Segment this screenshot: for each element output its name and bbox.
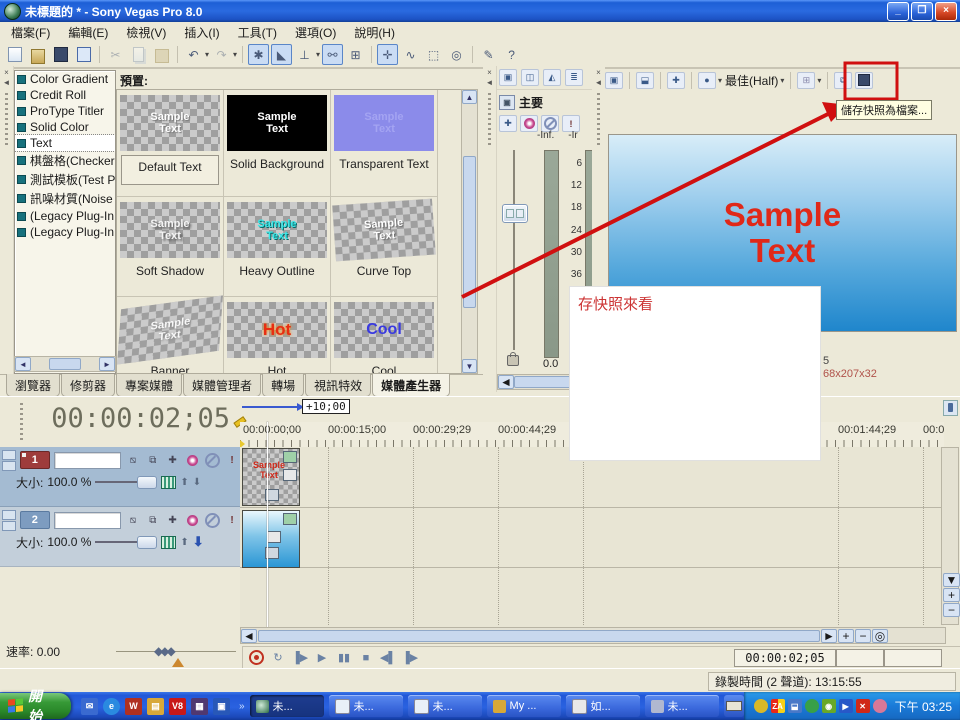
timeline-hscrollbar[interactable]: ◄ ► + − ◎ bbox=[240, 627, 946, 644]
plugin-icon bbox=[17, 91, 26, 100]
taskbar-clock: 下午 03:25 bbox=[895, 698, 952, 715]
scroll-left-icon[interactable]: ◄ bbox=[15, 357, 31, 371]
taskbar-window[interactable]: 如... bbox=[566, 695, 640, 717]
preset-grid: Sample Text Default Text Sample Text Sol… bbox=[116, 89, 462, 374]
timeline-big-timecode[interactable]: 00:00:02;05 bbox=[28, 403, 230, 437]
timeline-grip[interactable] bbox=[20, 403, 23, 441]
playhead-cursor[interactable] bbox=[267, 422, 268, 627]
stop-button[interactable]: ■ bbox=[357, 650, 375, 666]
play-from-start-button[interactable]: ▐▶ bbox=[291, 650, 309, 666]
tab-trimmer[interactable]: 修剪器 bbox=[61, 374, 115, 397]
plugin-icon bbox=[17, 228, 26, 237]
master-meter-left[interactable] bbox=[544, 150, 559, 358]
my-computer-icon[interactable]: ▣ bbox=[213, 698, 230, 715]
event-pan-crop-icon[interactable] bbox=[283, 469, 297, 481]
overlay-grid-icon[interactable]: ⊞ bbox=[797, 72, 815, 89]
cut-button[interactable]: ✂ bbox=[105, 44, 126, 65]
external-monitor-icon[interactable]: ⬓ bbox=[636, 72, 654, 89]
bypass-motion-blur-icon[interactable]: ⧅ bbox=[125, 453, 141, 468]
rate-scrub-control[interactable]: ◆◆◆ bbox=[116, 645, 236, 659]
drag-grip[interactable] bbox=[5, 93, 8, 147]
close-pane-icon[interactable]: × bbox=[487, 68, 492, 77]
track-lane-2[interactable] bbox=[240, 507, 944, 568]
mute-icon[interactable] bbox=[204, 513, 220, 528]
record-time-status: 錄製時間 (2 聲道): 13:15:55 bbox=[708, 672, 956, 691]
grid-spacing-button[interactable]: ⊥ bbox=[294, 44, 315, 65]
plugin-icon bbox=[17, 194, 26, 203]
master-fader-track[interactable] bbox=[513, 150, 515, 350]
selection-start-box[interactable] bbox=[836, 649, 884, 667]
rate-value: 0.00 bbox=[37, 645, 60, 659]
track-level-value: 100.0 % bbox=[47, 535, 91, 549]
downmix-output-icon[interactable]: ◫ bbox=[521, 69, 539, 86]
master-bus-icon[interactable]: ▣ bbox=[499, 95, 515, 110]
menu-help[interactable]: 說明(H) bbox=[345, 22, 404, 43]
taskbar-window[interactable]: My ... bbox=[487, 695, 561, 717]
preset-banner[interactable]: Sample Text Banner bbox=[117, 297, 224, 374]
fader-value: 0.0 bbox=[543, 358, 558, 370]
main-toolbar: ✂ ↶ ▾ ↷ ▾ ✱ ◣ ⊥ ▾ ⚯ ⊞ ✛ ∿ ⬚ ◎ ✎ ? bbox=[0, 42, 960, 69]
taskbar-window[interactable]: 未... bbox=[645, 695, 719, 717]
window-docking-tabs: 瀏覽器 修剪器 專案媒體 媒體管理者 轉場 視訊特效 媒體產生器 bbox=[0, 374, 487, 397]
preview-quality-icon[interactable]: ● bbox=[698, 72, 716, 89]
annotation-note: 存快照來看 bbox=[570, 287, 820, 314]
scroll-down-icon[interactable]: ▼ bbox=[462, 359, 477, 373]
document-task-icon bbox=[335, 699, 350, 714]
scrollbar-thumb[interactable] bbox=[49, 358, 81, 370]
marker-tool-icon[interactable] bbox=[943, 400, 958, 416]
loop-playback-button[interactable]: ↻ bbox=[269, 650, 287, 666]
track-header-2[interactable]: 2 ⧅ ⧉ ✚ ! 大小: 100.0 % ⬆ ⬇ bbox=[0, 507, 240, 567]
drag-grip[interactable] bbox=[597, 93, 600, 147]
open-button[interactable] bbox=[27, 44, 48, 65]
track-level-slider[interactable] bbox=[95, 536, 157, 548]
plugin-icon bbox=[17, 212, 26, 221]
tray-nvidia-icon[interactable]: ◉ bbox=[822, 699, 836, 713]
track-motion-icon[interactable]: ⧉ bbox=[145, 453, 161, 468]
minimize-button[interactable]: _ bbox=[887, 2, 909, 21]
preview-toolbar: ▣ ⬓ ✚ ● ▾ 最佳(Half) ▾ ⊞ ▾ ⧉ bbox=[605, 68, 960, 92]
parent-composite-icon[interactable] bbox=[161, 476, 176, 489]
zoom-tool-icon[interactable]: ◎ bbox=[872, 629, 888, 643]
normal-edit-tool[interactable]: ✛ bbox=[377, 44, 398, 65]
tab-transitions[interactable]: 轉場 bbox=[262, 374, 304, 397]
preset-curve-top[interactable]: Sample Text Curve Top bbox=[331, 197, 438, 297]
lock-fader-icon[interactable] bbox=[507, 355, 519, 366]
preset-cool[interactable]: Cool Cool bbox=[331, 297, 438, 374]
selection-length-box[interactable] bbox=[884, 649, 942, 667]
tray-alert-icon[interactable]: ✕ bbox=[856, 699, 870, 713]
make-child-icon[interactable]: ⬇ bbox=[193, 534, 204, 550]
scroll-right-icon[interactable]: ► bbox=[821, 629, 837, 643]
folder-icon[interactable]: ▤ bbox=[147, 698, 164, 715]
generator-item[interactable]: (Legacy Plug-In bbox=[15, 224, 115, 240]
fx-gear-icon[interactable] bbox=[520, 115, 538, 132]
zoom-out-time-icon[interactable]: − bbox=[855, 629, 871, 643]
save-button[interactable] bbox=[50, 44, 71, 65]
track-name-input[interactable] bbox=[54, 512, 121, 529]
save-snapshot-icon[interactable] bbox=[855, 72, 873, 89]
tray-green-icon[interactable] bbox=[805, 699, 819, 713]
go-to-end-button[interactable]: ▐▶ bbox=[401, 650, 419, 666]
preset-heavy-outline[interactable]: Sample Text Heavy Outline bbox=[224, 197, 331, 297]
menu-view[interactable]: 檢視(V) bbox=[117, 22, 175, 43]
rate-label: 速率: bbox=[6, 643, 33, 660]
tab-media-generators[interactable]: 媒體產生器 bbox=[372, 374, 450, 397]
title-bar[interactable]: 未標題的 * - Sony Vegas Pro 8.0 _ ❐ × bbox=[0, 0, 960, 22]
insert-fx-icon[interactable]: ✚ bbox=[499, 115, 517, 132]
preset-hot[interactable]: Hot Hot bbox=[224, 297, 331, 374]
snapping-toggle[interactable]: ✱ bbox=[248, 44, 269, 65]
app-task-icon bbox=[651, 700, 664, 713]
solo-icon[interactable]: ! bbox=[224, 513, 240, 528]
quality-dropdown-icon[interactable]: ▾ bbox=[780, 76, 784, 85]
selection-tool[interactable]: ⬚ bbox=[423, 44, 444, 65]
generated-media-icon[interactable] bbox=[283, 451, 297, 463]
bypass-motion-blur-icon[interactable]: ⧅ bbox=[125, 513, 141, 528]
track-minimize-icons[interactable] bbox=[2, 450, 16, 471]
pause-button[interactable]: ▮▮ bbox=[335, 650, 353, 666]
zoom-in-time-icon[interactable]: + bbox=[838, 629, 854, 643]
copy-button[interactable] bbox=[128, 44, 149, 65]
video-fx-icon[interactable]: ✚ bbox=[667, 72, 685, 89]
mixer-properties-icon[interactable]: ▣ bbox=[499, 69, 517, 86]
snapshot-white-box: 存快照來看 bbox=[570, 287, 820, 460]
menu-edit[interactable]: 編輯(E) bbox=[59, 22, 117, 43]
track-motion-icon[interactable]: ⧉ bbox=[145, 513, 161, 528]
collapse-pane-icon[interactable]: ◄ bbox=[486, 78, 494, 87]
generator-item[interactable]: (Legacy Plug-In bbox=[15, 208, 115, 224]
zoom-in-vertical-icon[interactable]: + bbox=[943, 588, 960, 602]
copy-snapshot-icon[interactable]: ⧉ bbox=[834, 72, 852, 89]
zoom-out-vertical-icon[interactable]: − bbox=[943, 603, 960, 617]
plugin-icon bbox=[17, 175, 26, 184]
collapse-pane-icon[interactable]: ◄ bbox=[595, 78, 603, 87]
scroll-left-icon[interactable]: ◄ bbox=[241, 629, 257, 643]
properties-button[interactable] bbox=[73, 44, 94, 65]
tab-media-manager[interactable]: 媒體管理者 bbox=[183, 374, 261, 397]
app-icon[interactable]: ▦ bbox=[191, 698, 208, 715]
whats-this-button[interactable]: ? bbox=[501, 44, 522, 65]
generator-item[interactable]: 訊噪材質(Noise bbox=[15, 189, 115, 208]
insert-bus-icon[interactable]: ≣ bbox=[565, 69, 583, 86]
vegas-app-window: 未標題的 * - Sony Vegas Pro 8.0 _ ❐ × 檔案(F) … bbox=[0, 0, 960, 720]
new-project-button[interactable] bbox=[4, 44, 25, 65]
window-title: 未標題的 * - Sony Vegas Pro 8.0 bbox=[25, 3, 202, 20]
taskbar-window-vegas[interactable]: 未... bbox=[250, 695, 324, 717]
generator-item[interactable]: Color Gradient bbox=[15, 71, 115, 87]
mixer-dock-grip[interactable]: × ◄ bbox=[483, 66, 497, 392]
quantize-frames-toggle[interactable]: ◣ bbox=[271, 44, 292, 65]
track-minimize-icons[interactable] bbox=[2, 510, 16, 531]
system-tray: ZA ⬓ ◉ ▶ ✕ 下午 03:25 bbox=[744, 692, 960, 720]
generator-item[interactable]: Solid Color bbox=[15, 119, 115, 135]
scrub-diamonds-icon[interactable]: ◆◆◆ bbox=[154, 644, 173, 658]
make-child-icon[interactable]: ⬇ bbox=[193, 477, 201, 488]
tab-video-fx[interactable]: 視訊特效 bbox=[305, 374, 371, 397]
generator-list-hscrollbar[interactable]: ◄ ► bbox=[14, 356, 116, 372]
quick-launch-overflow-icon[interactable]: » bbox=[239, 701, 245, 712]
track-fx-icon[interactable]: ✚ bbox=[165, 513, 181, 528]
generated-media-icon[interactable] bbox=[283, 513, 297, 525]
zoom-edit-tool[interactable]: ◎ bbox=[446, 44, 467, 65]
tray-player-icon[interactable]: ▶ bbox=[839, 699, 853, 713]
document-task-icon bbox=[414, 699, 429, 714]
master-fader-handle[interactable] bbox=[502, 204, 528, 223]
track-name-input[interactable] bbox=[54, 452, 121, 469]
track-fx-icon[interactable]: ✚ bbox=[165, 453, 181, 468]
close-button[interactable]: × bbox=[935, 2, 957, 21]
restore-button[interactable]: ❐ bbox=[911, 2, 933, 21]
generator-item[interactable]: Credit Roll bbox=[15, 87, 115, 103]
preset-solid-background[interactable]: Sample Text Solid Background bbox=[224, 90, 331, 197]
scrollbar-thumb[interactable] bbox=[514, 376, 576, 388]
preview-quality-value[interactable]: 最佳(Half) bbox=[725, 72, 778, 89]
tray-network-icon[interactable]: ⬓ bbox=[788, 699, 802, 713]
scroll-down-icon[interactable]: ▼ bbox=[943, 573, 960, 587]
scroll-left-icon[interactable]: ◄ bbox=[498, 375, 514, 389]
track-lanes[interactable]: Sample Text bbox=[240, 447, 944, 629]
preset-transparent-text[interactable]: Sample Text Transparent Text bbox=[331, 90, 438, 197]
generator-list: Color Gradient Credit Roll ProType Title… bbox=[14, 70, 116, 374]
transport-timecode[interactable]: 00:00:02;05 bbox=[734, 649, 836, 667]
mail-icon[interactable]: ✉ bbox=[81, 698, 98, 715]
dim-output-icon[interactable]: ◭ bbox=[543, 69, 561, 86]
collapse-pane-icon[interactable]: ◄ bbox=[3, 78, 11, 87]
auto-ripple-toggle[interactable]: ⚯ bbox=[322, 44, 343, 65]
taskbar-window[interactable]: 未... bbox=[329, 695, 403, 717]
menu-insert[interactable]: 插入(I) bbox=[175, 22, 228, 43]
master-bus-label: 主要 bbox=[519, 94, 543, 111]
drag-indicator-arrow bbox=[242, 406, 298, 408]
tab-project-media[interactable]: 專案媒體 bbox=[116, 374, 182, 397]
track-level-value: 100.0 % bbox=[47, 475, 91, 489]
generator-dock-grip[interactable]: × ◄ bbox=[0, 66, 14, 376]
gradient-event-clip[interactable] bbox=[242, 510, 300, 568]
track-level-label: 大小: bbox=[16, 534, 43, 551]
taskbar-window[interactable]: 未... bbox=[408, 695, 482, 717]
vegas-task-icon bbox=[256, 700, 269, 713]
quick-launch-bar: ✉ e W ▤ V8 ▦ ▣ » bbox=[81, 698, 245, 715]
windows-taskbar: 開始 ✉ e W ▤ V8 ▦ ▣ » 未... 未... 未... My ..… bbox=[0, 692, 960, 720]
status-bar: 錄製時間 (2 聲道): 13:15:55 bbox=[0, 668, 960, 693]
tab-explorer[interactable]: 瀏覽器 bbox=[6, 374, 60, 397]
grid-dropdown-icon[interactable]: ▾ bbox=[316, 50, 320, 59]
record-button[interactable] bbox=[247, 650, 265, 666]
menu-file[interactable]: 檔案(F) bbox=[2, 22, 59, 43]
go-to-start-button[interactable]: ◀▌ bbox=[379, 650, 397, 666]
scroll-up-icon[interactable]: ▲ bbox=[462, 90, 477, 104]
play-button[interactable]: ▶ bbox=[313, 650, 331, 666]
plugin-icon bbox=[17, 75, 26, 84]
solo-icon[interactable]: ! bbox=[224, 453, 240, 468]
track-header-1[interactable]: 1 ⧅ ⧉ ✚ ! 大小: 100.0 % ⬆ ⬇ bbox=[0, 447, 240, 507]
text-event-clip[interactable]: Sample Text bbox=[242, 448, 300, 506]
parent-composite-icon[interactable] bbox=[161, 536, 176, 549]
drag-grip[interactable] bbox=[488, 93, 491, 147]
generator-item-text-selected[interactable]: Text bbox=[15, 135, 115, 151]
event-pan-crop-icon[interactable] bbox=[267, 531, 281, 543]
make-parent-icon[interactable]: ⬆ bbox=[180, 537, 188, 548]
drag-offset-label: +10;00 bbox=[302, 399, 350, 414]
project-properties-icon[interactable]: ▣ bbox=[605, 72, 623, 89]
meter-top-label-right: -Ir bbox=[568, 130, 577, 141]
scrollbar-thumb[interactable] bbox=[463, 156, 476, 308]
tray-audio-icon[interactable] bbox=[754, 699, 768, 713]
compositing-gear-icon[interactable] bbox=[185, 513, 201, 528]
quality-dropdown-icon[interactable]: ▾ bbox=[718, 76, 722, 85]
scroll-right-icon[interactable]: ► bbox=[99, 357, 115, 371]
pen-tool[interactable]: ✎ bbox=[478, 44, 499, 65]
tray-pink-icon[interactable] bbox=[873, 699, 887, 713]
redo-dropdown-icon[interactable]: ▾ bbox=[233, 50, 237, 59]
notepad-task-icon bbox=[572, 699, 587, 714]
transport-bar: ↻ ▐▶ ▶ ▮▮ ■ ◀▌ ▐▶ 00:00:02;05 bbox=[242, 646, 960, 669]
plugin-icon bbox=[17, 139, 26, 148]
undo-dropdown-icon[interactable]: ▾ bbox=[205, 50, 209, 59]
folder-task-icon bbox=[493, 700, 506, 713]
generator-item[interactable]: 測試模板(Test P bbox=[15, 170, 115, 189]
rate-marker-icon bbox=[172, 658, 184, 667]
menu-options[interactable]: 選項(O) bbox=[286, 22, 345, 43]
tray-zonealarm-icon[interactable]: ZA bbox=[771, 699, 785, 713]
menu-tools[interactable]: 工具(T) bbox=[229, 22, 286, 43]
compositing-gear-icon[interactable] bbox=[185, 453, 201, 468]
generator-item[interactable]: ProType Titler bbox=[15, 103, 115, 119]
preview-sample-text: Sample Text bbox=[724, 197, 841, 270]
start-button[interactable]: 開始 bbox=[0, 693, 71, 719]
mute-icon[interactable] bbox=[204, 453, 220, 468]
mixer-toolbar: ▣ ◫ ◭ ≣ bbox=[497, 66, 592, 90]
track-number-badge[interactable]: 2 bbox=[20, 511, 50, 529]
ie-icon[interactable]: e bbox=[103, 698, 120, 715]
track-level-slider[interactable] bbox=[95, 476, 157, 488]
overlay-dropdown-icon[interactable]: ▾ bbox=[817, 76, 821, 85]
preset-vscrollbar[interactable]: ▲ ▼ bbox=[461, 89, 478, 374]
preset-label: 預置: bbox=[120, 72, 148, 89]
preset-default-text[interactable]: Sample Text Default Text bbox=[117, 90, 224, 197]
make-parent-icon[interactable]: ⬆ bbox=[180, 477, 188, 488]
save-snapshot-tooltip: 儲存快照為檔案... bbox=[836, 100, 932, 120]
close-pane-icon[interactable]: × bbox=[596, 68, 601, 77]
track-number-badge[interactable]: 1 bbox=[20, 451, 50, 469]
plugin-icon bbox=[17, 107, 26, 116]
generator-item[interactable]: 棋盤格(Checkerl bbox=[15, 151, 115, 170]
preview-status-info: 5 68x207x32 bbox=[823, 355, 877, 381]
track-level-label: 大小: bbox=[16, 474, 43, 491]
lock-envelopes-toggle[interactable]: ⊞ bbox=[345, 44, 366, 65]
envelope-tool[interactable]: ∿ bbox=[400, 44, 421, 65]
plugin-icon bbox=[17, 123, 26, 132]
plugin-icon bbox=[17, 156, 26, 165]
vegas8-icon[interactable]: V8 bbox=[169, 698, 186, 715]
rate-control: 速率: 0.00 ◆◆◆ bbox=[6, 643, 236, 660]
windows-flag-icon bbox=[8, 698, 23, 714]
app-icon bbox=[4, 3, 21, 20]
menu-bar: 檔案(F) 編輯(E) 檢視(V) 插入(I) 工具(T) 選項(O) 說明(H… bbox=[0, 22, 960, 43]
scrollbar-thumb[interactable] bbox=[258, 630, 820, 642]
redo-button[interactable]: ↷ bbox=[211, 44, 232, 65]
media-player-icon[interactable]: W bbox=[125, 698, 142, 715]
meter-top-label-left: -Inf. bbox=[537, 130, 554, 141]
paste-button[interactable] bbox=[151, 44, 172, 65]
preset-soft-shadow[interactable]: Sample Text Soft Shadow bbox=[117, 197, 224, 297]
input-method-button[interactable] bbox=[724, 695, 744, 717]
close-pane-icon[interactable]: × bbox=[4, 68, 9, 77]
undo-button[interactable]: ↶ bbox=[183, 44, 204, 65]
